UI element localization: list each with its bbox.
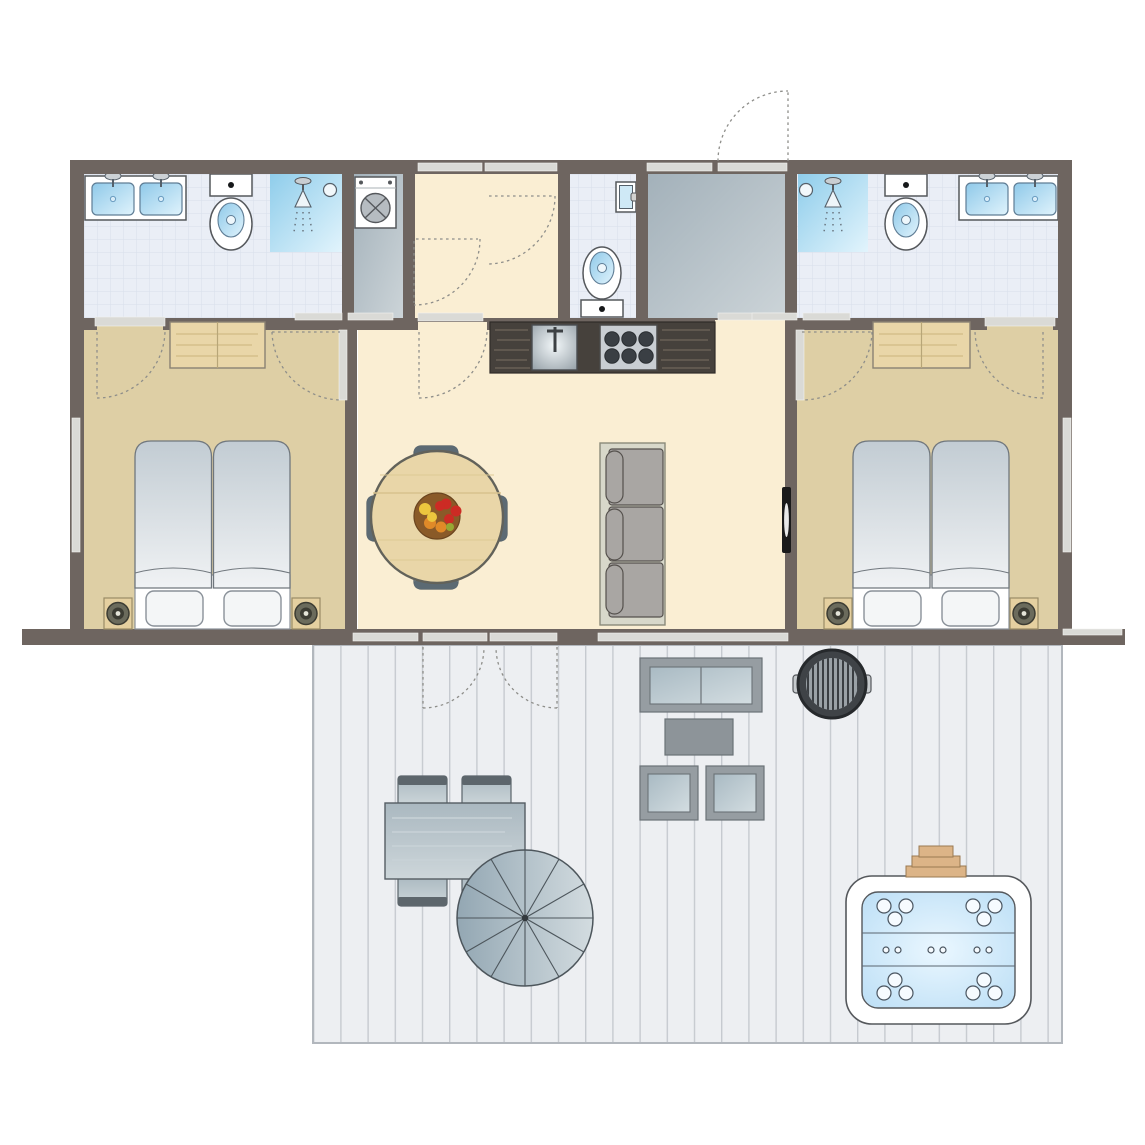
transom-bar	[295, 313, 342, 320]
deck-terrace	[313, 645, 1062, 1043]
sofa	[600, 443, 665, 625]
toilet	[885, 174, 927, 250]
duvet	[214, 441, 291, 588]
bedroomL-door-leaf[interactable]	[339, 330, 347, 400]
lounge-sofa	[640, 658, 762, 712]
nightstand	[292, 598, 320, 629]
lounge-chair	[640, 766, 698, 820]
entry-sidelight-window	[647, 163, 712, 171]
hot-tub	[846, 876, 1031, 1024]
transom-bar	[803, 313, 850, 320]
wall-entrance-bath	[785, 174, 797, 318]
duvet	[932, 441, 1009, 588]
tv	[782, 487, 791, 553]
window-south-bedroomL	[353, 633, 418, 641]
wc-window	[616, 182, 637, 212]
hall-living-door[interactable]	[418, 313, 483, 321]
kitchen-counter	[490, 322, 715, 373]
nightstand	[1010, 598, 1038, 629]
nightstand	[104, 598, 132, 629]
utility-room	[355, 177, 396, 228]
transom-bar	[348, 313, 393, 320]
wall-west	[70, 160, 84, 645]
window-south-living	[598, 633, 788, 641]
coffee-table	[665, 719, 733, 755]
double-washbasin	[959, 172, 1058, 220]
french-door-leaf-right[interactable]	[490, 633, 557, 641]
hallway-floor	[415, 174, 558, 318]
pillow	[942, 591, 999, 626]
deck-chair	[398, 876, 447, 906]
bathroomL-door-leaf[interactable]	[95, 317, 165, 326]
duvet	[853, 441, 930, 588]
nightstand	[824, 598, 852, 629]
window-east-bedroom	[1063, 418, 1071, 552]
deck-chair	[462, 776, 511, 806]
washing-machine	[355, 177, 396, 228]
entry-door-leaf[interactable]	[718, 163, 787, 171]
pillow	[146, 591, 203, 626]
hob	[600, 325, 657, 370]
window-north-hall-1	[418, 163, 482, 171]
window-west-bedroom	[72, 418, 80, 552]
deck-chair	[398, 776, 447, 806]
pillow	[864, 591, 921, 626]
wardrobe	[873, 322, 970, 368]
back-cushion	[606, 509, 623, 560]
floor-plan	[0, 0, 1145, 1145]
wall-utility-hall	[403, 174, 415, 318]
window-north-hall-2	[485, 163, 557, 171]
wall-east	[1058, 160, 1072, 645]
transom-bar	[752, 313, 797, 320]
french-door-leaf-left[interactable]	[423, 633, 487, 641]
parasol-pole	[522, 915, 528, 921]
toilet	[581, 247, 623, 317]
shower-drain	[800, 184, 813, 197]
wall-north	[70, 160, 1072, 174]
pillow	[224, 591, 281, 626]
bedroomR-door-leaf[interactable]	[796, 330, 804, 400]
parasol	[457, 850, 593, 986]
entrance-floor	[648, 174, 785, 318]
window-south-east	[1063, 629, 1122, 635]
wall-south-band	[22, 629, 1125, 645]
dining-table	[371, 451, 503, 583]
wall-bath-utility	[342, 174, 354, 318]
back-cushion	[606, 451, 623, 503]
duvet	[135, 441, 212, 588]
bathroomR-door-leaf[interactable]	[985, 317, 1055, 326]
wall-hall-wc	[558, 174, 570, 318]
lounge-chair	[706, 766, 764, 820]
toilet	[210, 174, 252, 250]
double-washbasin	[85, 172, 186, 220]
wardrobe	[170, 322, 265, 368]
wall-wc-entrance	[636, 174, 648, 318]
wall-living-bedroomR	[785, 330, 797, 629]
floor-plan-canvas	[0, 0, 1145, 1145]
shower-drain	[324, 184, 337, 197]
back-cushion	[606, 565, 623, 614]
